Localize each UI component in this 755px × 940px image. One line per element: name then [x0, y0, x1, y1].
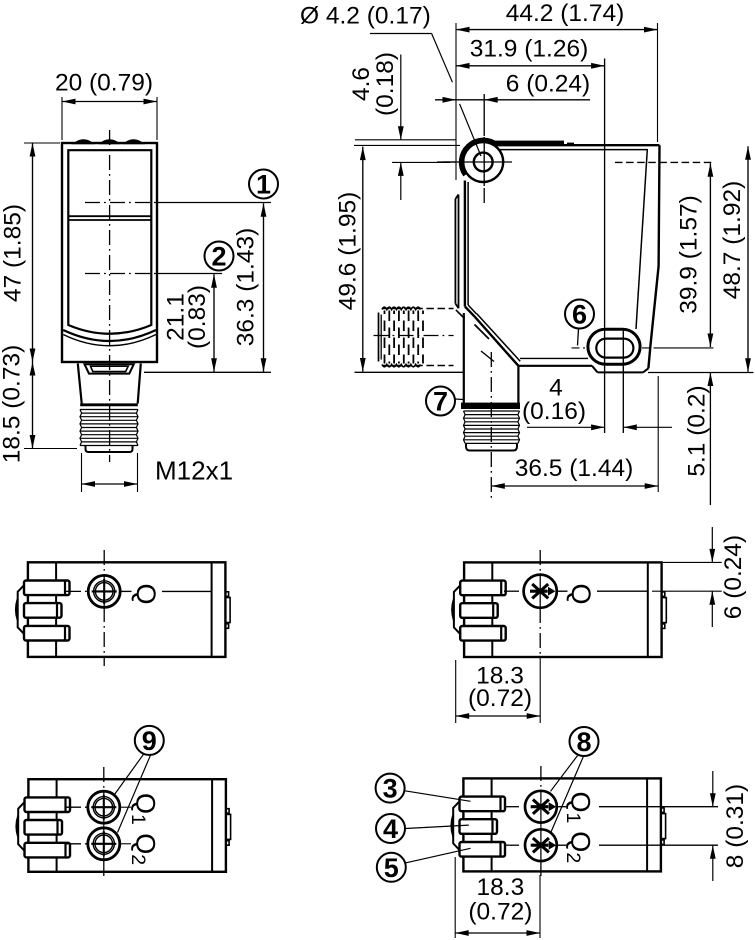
svg-text:8 (0.31): 8 (0.31) — [722, 784, 749, 868]
svg-text:6 (0.24): 6 (0.24) — [506, 71, 590, 98]
svg-text:7: 7 — [433, 387, 448, 417]
svg-text:18.5 (0.73): 18.5 (0.73) — [0, 345, 26, 464]
svg-text:39.9 (1.57): 39.9 (1.57) — [676, 195, 703, 314]
svg-text:31.9 (1.26): 31.9 (1.26) — [470, 36, 589, 63]
svg-text:49.6 (1.95): 49.6 (1.95) — [335, 192, 362, 311]
svg-text:Q: Q — [566, 584, 596, 605]
svg-text:9: 9 — [142, 726, 157, 756]
svg-text:Ø 4.2 (0.17): Ø 4.2 (0.17) — [300, 3, 431, 30]
svg-text:3: 3 — [383, 774, 398, 804]
svg-text:(0.16): (0.16) — [522, 398, 586, 425]
svg-text:(0.18): (0.18) — [372, 52, 399, 116]
svg-text:8: 8 — [576, 727, 591, 757]
svg-text:18.3: 18.3 — [477, 874, 525, 901]
svg-text:6 (0.24): 6 (0.24) — [720, 535, 747, 619]
svg-text:Q: Q — [131, 584, 161, 605]
svg-text:44.2 (1.74): 44.2 (1.74) — [506, 0, 625, 27]
svg-text:M12x1: M12x1 — [155, 456, 233, 486]
svg-text:4: 4 — [383, 814, 398, 844]
svg-text:(0.83): (0.83) — [184, 285, 211, 349]
svg-text:36.3 (1.43): 36.3 (1.43) — [233, 228, 260, 347]
svg-text:6: 6 — [572, 300, 587, 330]
svg-text:47 (1.85): 47 (1.85) — [0, 204, 27, 302]
svg-text:(0.72): (0.72) — [468, 685, 532, 712]
svg-text:1: 1 — [256, 170, 271, 200]
svg-text:5: 5 — [384, 853, 399, 883]
svg-text:5.1 (0.2): 5.1 (0.2) — [684, 385, 711, 476]
svg-text:4.6: 4.6 — [348, 67, 375, 101]
svg-text:2: 2 — [211, 242, 226, 272]
svg-text:36.5 (1.44): 36.5 (1.44) — [515, 455, 634, 482]
svg-text:(0.72): (0.72) — [468, 899, 532, 926]
svg-text:20 (0.79): 20 (0.79) — [55, 70, 153, 97]
svg-text:48.7 (1.92): 48.7 (1.92) — [719, 181, 746, 300]
